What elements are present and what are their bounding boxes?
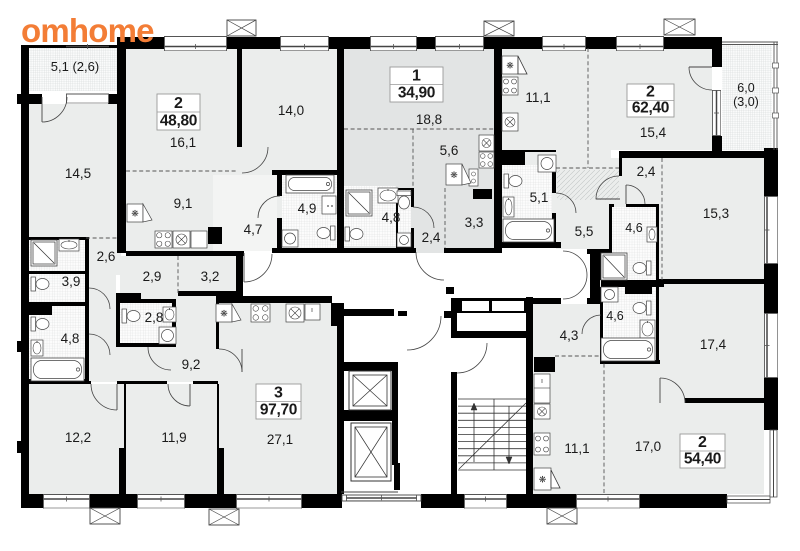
svg-text:18,8: 18,8 <box>416 112 442 127</box>
svg-text:❋: ❋ <box>131 209 139 219</box>
svg-text:2,8: 2,8 <box>145 310 164 325</box>
svg-text:(3,0): (3,0) <box>733 95 759 109</box>
svg-text:omhome: omhome <box>21 12 154 49</box>
svg-text:11,1: 11,1 <box>564 441 589 456</box>
svg-text:48,80: 48,80 <box>160 113 197 130</box>
svg-text:2: 2 <box>174 95 183 112</box>
svg-text:5,1 (2,6): 5,1 (2,6) <box>51 59 99 74</box>
svg-text:❋: ❋ <box>220 309 228 319</box>
svg-text:5,1: 5,1 <box>530 190 549 205</box>
svg-text:3,9: 3,9 <box>62 274 81 289</box>
svg-text:1: 1 <box>412 68 421 85</box>
svg-text:2,6: 2,6 <box>97 249 116 264</box>
svg-text:4,9: 4,9 <box>298 201 317 216</box>
svg-text:14,0: 14,0 <box>278 103 304 118</box>
svg-text:54,40: 54,40 <box>684 451 721 468</box>
svg-text:97,70: 97,70 <box>260 402 297 419</box>
svg-text:16,1: 16,1 <box>170 135 196 150</box>
svg-text:4,8: 4,8 <box>61 331 80 346</box>
svg-text:4,7: 4,7 <box>244 222 263 237</box>
svg-text:4,3: 4,3 <box>560 328 579 343</box>
svg-text:3: 3 <box>274 385 283 402</box>
svg-text:9,2: 9,2 <box>182 357 201 372</box>
svg-text:4,6: 4,6 <box>606 309 623 323</box>
svg-text:2,4: 2,4 <box>422 230 441 245</box>
svg-text:2: 2 <box>646 84 655 101</box>
svg-text:❋: ❋ <box>450 170 458 180</box>
svg-text:34,90: 34,90 <box>398 85 435 102</box>
svg-text:5,6: 5,6 <box>440 143 459 158</box>
svg-text:2: 2 <box>698 434 707 451</box>
svg-text:15,4: 15,4 <box>640 125 667 140</box>
svg-text:27,1: 27,1 <box>267 432 293 447</box>
svg-text:4,6: 4,6 <box>625 221 642 235</box>
svg-text:12,2: 12,2 <box>65 430 91 445</box>
svg-text:11,9: 11,9 <box>161 430 186 445</box>
svg-text:9,1: 9,1 <box>174 196 193 211</box>
svg-text:14,5: 14,5 <box>65 166 91 181</box>
svg-text:11,1: 11,1 <box>525 90 550 105</box>
svg-text:15,3: 15,3 <box>703 206 729 221</box>
svg-text:4,8: 4,8 <box>382 210 401 225</box>
svg-text:2,9: 2,9 <box>143 269 162 284</box>
svg-text:❋: ❋ <box>506 61 514 71</box>
svg-text:62,40: 62,40 <box>632 100 669 117</box>
svg-text:5,5: 5,5 <box>575 224 594 239</box>
svg-text:3,3: 3,3 <box>465 215 484 230</box>
svg-text:3,2: 3,2 <box>201 269 220 284</box>
svg-text:❋: ❋ <box>539 475 547 485</box>
svg-text:17,0: 17,0 <box>635 439 661 454</box>
svg-text:6,0: 6,0 <box>737 81 754 95</box>
svg-text:17,4: 17,4 <box>700 337 727 352</box>
svg-text:2,4: 2,4 <box>637 164 656 179</box>
